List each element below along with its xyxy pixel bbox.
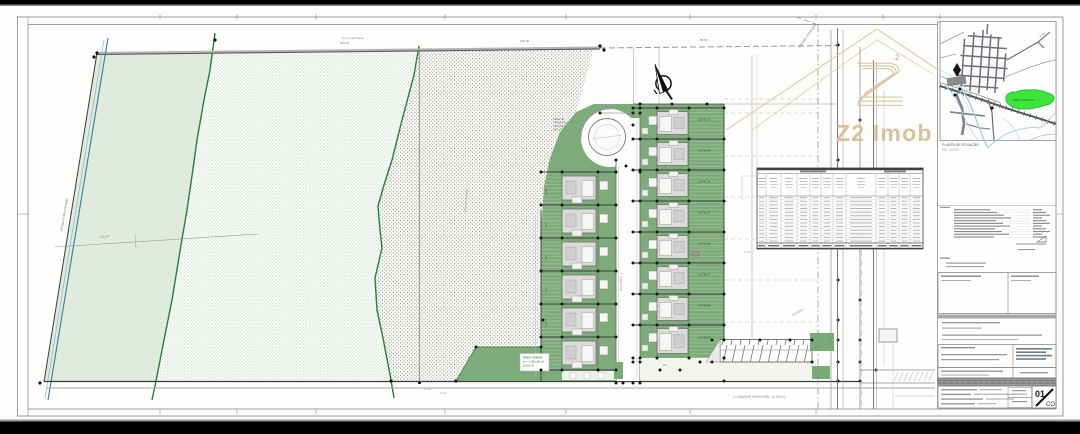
svg-text:85,00: 85,00	[700, 38, 708, 42]
svg-text:( CAMINHO MUNICIPAL 12,00 m ): ( CAMINHO MUNICIPAL 12,00 m )	[733, 395, 785, 399]
svg-text:L14: L14	[544, 321, 548, 326]
svg-text:LOTE 07: LOTE 07	[698, 273, 710, 277]
svg-text:LOTE 08: LOTE 08	[698, 304, 710, 308]
svg-text:1:75: 1:75	[744, 250, 750, 254]
svg-text:RUA PROJ. 1: RUA PROJ. 1	[619, 272, 623, 291]
svg-text:P1: P1	[663, 363, 667, 367]
svg-text:PLANTA DE SITUAÇÃO: PLANTA DE SITUAÇÃO	[942, 142, 979, 147]
svg-text:LOTE 06: LOTE 06	[698, 242, 710, 246]
svg-text:ÁREA DE: ÁREA DE	[553, 117, 565, 121]
svg-text:12,00: 12,00	[440, 391, 447, 395]
svg-text:Z2 Imob: Z2 Imob	[836, 120, 933, 146]
svg-text:ESC. 1:10.000: ESC. 1:10.000	[942, 148, 959, 152]
svg-text:CO: CO	[1046, 402, 1055, 408]
svg-text:LOTE 09: LOTE 09	[698, 336, 710, 340]
svg-text:ÁREA OBJETO ...: ÁREA OBJETO ...	[1013, 98, 1037, 102]
svg-text:345,00: 345,00	[340, 41, 350, 45]
svg-text:LOTE 05: LOTE 05	[698, 211, 710, 215]
svg-text:LOTE 04: LOTE 04	[698, 180, 710, 184]
svg-text:lim. propriedade: lim. propriedade	[342, 36, 364, 40]
svg-text:LOTE 02: LOTE 02	[698, 118, 710, 122]
svg-text:10,52 %: 10,52 %	[523, 364, 534, 368]
svg-text:L12: L12	[544, 255, 548, 260]
svg-text:L11: L11	[544, 222, 548, 227]
svg-text:2: 2	[895, 53, 900, 62]
svg-text:23,45: 23,45	[424, 387, 431, 391]
svg-text:L10: L10	[544, 189, 548, 194]
svg-text:120,00: 120,00	[520, 39, 530, 43]
svg-text:LOTE 03: LOTE 03	[698, 149, 710, 153]
svg-text:156,80: 156,80	[100, 234, 110, 239]
svg-text:L13: L13	[544, 288, 548, 293]
